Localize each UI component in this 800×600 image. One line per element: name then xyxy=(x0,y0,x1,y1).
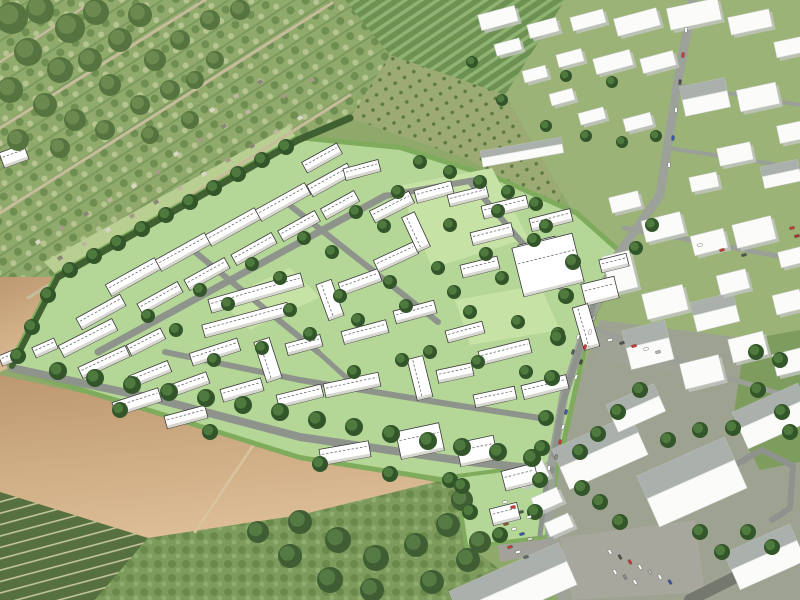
tree-highlight xyxy=(162,82,174,94)
tree-highlight xyxy=(581,131,588,138)
tree xyxy=(491,204,505,218)
tree-highlight xyxy=(346,419,357,430)
tree xyxy=(572,444,588,460)
tree-highlight xyxy=(471,533,485,547)
tree-highlight xyxy=(528,234,537,243)
tree xyxy=(645,218,659,232)
tree xyxy=(55,13,85,43)
tree xyxy=(206,180,222,196)
tree-highlight xyxy=(741,525,751,535)
tree-highlight xyxy=(207,52,218,63)
tree-highlight xyxy=(235,397,246,408)
tree xyxy=(610,404,626,420)
tree-highlight xyxy=(492,205,501,214)
tree xyxy=(519,365,533,379)
tree-highlight xyxy=(474,176,483,185)
tree xyxy=(764,539,780,555)
tree-highlight xyxy=(25,320,35,330)
tree xyxy=(158,207,174,223)
tree xyxy=(297,231,311,245)
tree-highlight xyxy=(617,137,624,144)
tree xyxy=(772,352,788,368)
tree xyxy=(325,527,351,553)
tree xyxy=(612,514,628,530)
tree-highlight xyxy=(170,324,179,333)
tree-highlight xyxy=(101,76,115,90)
tree-highlight xyxy=(528,505,538,515)
tree-highlight xyxy=(400,300,409,309)
tree-highlight xyxy=(182,112,193,123)
tree xyxy=(560,70,572,82)
tree xyxy=(86,369,104,387)
tree-highlight xyxy=(496,272,505,281)
tree xyxy=(632,382,648,398)
car xyxy=(684,27,687,32)
tree-highlight xyxy=(383,426,394,437)
tree-highlight xyxy=(159,208,169,218)
tree xyxy=(303,327,317,341)
tree xyxy=(479,247,493,261)
tree-highlight xyxy=(256,342,265,351)
tree-highlight xyxy=(541,121,548,128)
tree xyxy=(160,80,180,100)
tree xyxy=(182,194,198,210)
tree-highlight xyxy=(384,276,393,285)
tree xyxy=(7,129,29,151)
tree-highlight xyxy=(472,356,481,365)
tree-highlight xyxy=(444,166,453,175)
tree-highlight xyxy=(607,77,614,84)
tree xyxy=(99,74,121,96)
tree xyxy=(10,348,26,364)
tree-highlight xyxy=(222,298,231,307)
tree-highlight xyxy=(630,242,639,251)
tree xyxy=(404,533,428,557)
tree xyxy=(24,319,40,335)
tree-highlight xyxy=(172,32,184,44)
tree xyxy=(169,323,183,337)
tree xyxy=(471,355,485,369)
tree xyxy=(325,245,339,259)
tree-highlight xyxy=(130,5,145,20)
tree-highlight xyxy=(520,366,529,375)
tree xyxy=(501,185,515,199)
tree xyxy=(130,95,150,115)
tree-highlight xyxy=(87,249,97,259)
tree xyxy=(134,221,150,237)
tree-highlight xyxy=(80,50,95,65)
tree-highlight xyxy=(232,2,244,14)
tree xyxy=(463,305,477,319)
tree-highlight xyxy=(497,95,504,102)
tree-highlight xyxy=(9,131,23,145)
tree-highlight xyxy=(124,377,135,388)
tree-highlight xyxy=(611,405,621,415)
tree-highlight xyxy=(775,405,785,415)
car xyxy=(678,79,681,84)
tree-highlight xyxy=(383,467,393,477)
tree-highlight xyxy=(535,441,545,451)
tree xyxy=(382,425,400,443)
tree xyxy=(283,303,297,317)
tree-highlight xyxy=(194,284,203,293)
tree-highlight xyxy=(783,425,793,435)
tree-highlight xyxy=(551,331,561,341)
tree-highlight xyxy=(132,97,144,109)
tree-highlight xyxy=(524,450,535,461)
tree xyxy=(443,218,457,232)
tree xyxy=(170,30,190,50)
tree-highlight xyxy=(352,314,361,323)
car xyxy=(671,135,674,140)
tree xyxy=(692,524,708,540)
tree xyxy=(49,362,67,380)
tree xyxy=(110,235,126,251)
tree xyxy=(197,389,215,407)
tree xyxy=(83,0,109,25)
tree xyxy=(558,288,574,304)
tree-highlight xyxy=(348,366,357,375)
tree xyxy=(650,130,662,142)
tree-highlight xyxy=(661,433,671,443)
tree-highlight xyxy=(438,515,453,530)
tree-highlight xyxy=(113,403,123,413)
tree-highlight xyxy=(463,505,473,515)
tree-highlight xyxy=(304,328,313,337)
tree xyxy=(230,166,246,182)
tree xyxy=(550,330,566,346)
tree xyxy=(534,440,550,456)
car xyxy=(667,162,670,167)
tree-highlight xyxy=(773,353,783,363)
tree xyxy=(207,353,221,367)
tree xyxy=(312,456,328,472)
tree-highlight xyxy=(272,404,283,415)
tree xyxy=(544,370,560,386)
tree-highlight xyxy=(11,349,21,359)
tree-highlight xyxy=(327,529,343,545)
tree-highlight xyxy=(613,515,623,525)
tree xyxy=(420,570,444,594)
tree-highlight xyxy=(422,572,437,587)
tree xyxy=(40,287,56,303)
tree-highlight xyxy=(502,186,511,195)
tree-highlight xyxy=(249,523,263,537)
tree xyxy=(574,480,590,496)
tree xyxy=(273,271,287,285)
tree-highlight xyxy=(97,122,109,134)
tree-highlight xyxy=(559,289,569,299)
tree xyxy=(86,248,102,264)
tree xyxy=(349,205,363,219)
tree xyxy=(247,521,269,543)
tree xyxy=(383,275,397,289)
tree-highlight xyxy=(464,306,473,315)
tree-highlight xyxy=(539,411,549,421)
tree xyxy=(538,410,554,426)
tree-highlight xyxy=(202,12,214,24)
tree xyxy=(436,513,460,537)
tree-highlight xyxy=(208,354,217,363)
tree xyxy=(492,527,508,543)
tree xyxy=(419,432,437,450)
tree xyxy=(278,544,302,568)
tree-highlight xyxy=(406,535,421,550)
tree-highlight xyxy=(414,156,423,165)
tree xyxy=(774,404,790,420)
tree xyxy=(527,233,541,247)
car xyxy=(681,52,684,57)
tree-highlight xyxy=(420,433,431,444)
tree-highlight xyxy=(591,427,601,437)
tree xyxy=(254,152,270,168)
tree-highlight xyxy=(378,220,387,229)
tree xyxy=(128,3,152,27)
tree-highlight xyxy=(749,345,759,355)
tree xyxy=(590,426,606,442)
tree-highlight xyxy=(49,59,65,75)
tree xyxy=(181,111,199,129)
tree xyxy=(431,261,445,275)
tree xyxy=(141,126,159,144)
tree-highlight xyxy=(35,95,50,110)
tree-highlight xyxy=(593,495,603,505)
tree xyxy=(363,545,389,571)
tree xyxy=(186,71,204,89)
tree xyxy=(112,402,128,418)
tree xyxy=(539,219,553,233)
tree xyxy=(511,315,525,329)
tree-highlight xyxy=(142,310,151,319)
tree-highlight xyxy=(693,423,703,433)
tree xyxy=(466,56,478,68)
tree-highlight xyxy=(573,445,583,455)
tree xyxy=(462,504,478,520)
tree-highlight xyxy=(142,127,153,138)
car xyxy=(674,107,677,112)
tree xyxy=(160,383,178,401)
tree xyxy=(447,285,461,299)
tree-highlight xyxy=(545,371,555,381)
tree xyxy=(202,424,218,440)
tree-highlight xyxy=(646,219,655,228)
tree-highlight xyxy=(110,30,125,45)
tree xyxy=(200,10,220,30)
tree xyxy=(50,138,70,158)
tree-highlight xyxy=(365,547,381,563)
tree xyxy=(565,254,581,270)
tree-highlight xyxy=(512,316,521,325)
tree-highlight xyxy=(490,444,501,455)
tree-highlight xyxy=(458,550,473,565)
tree xyxy=(206,51,224,69)
tree xyxy=(351,313,365,327)
tree-highlight xyxy=(530,198,539,207)
tree-highlight xyxy=(561,71,568,78)
tree xyxy=(616,136,628,148)
tree-highlight xyxy=(41,288,51,298)
tree xyxy=(141,309,155,323)
tree-highlight xyxy=(540,220,549,229)
tree xyxy=(245,257,259,271)
tree xyxy=(308,411,326,429)
tree xyxy=(692,422,708,438)
urban-planning-aerial-view xyxy=(0,0,800,600)
scene-canvas xyxy=(0,0,800,600)
tree-highlight xyxy=(66,111,80,125)
tree xyxy=(748,344,764,360)
tree-highlight xyxy=(444,219,453,228)
tree xyxy=(62,262,78,278)
tree xyxy=(660,432,676,448)
tree-highlight xyxy=(183,195,193,205)
tree-highlight xyxy=(313,457,323,467)
tree xyxy=(592,494,608,510)
tree xyxy=(489,443,507,461)
tree-highlight xyxy=(448,286,457,295)
tree-highlight xyxy=(454,439,465,450)
tree xyxy=(453,438,471,456)
tree xyxy=(347,365,361,379)
tree-highlight xyxy=(480,248,489,257)
tree-highlight xyxy=(187,72,198,83)
tree xyxy=(234,396,252,414)
tree-highlight xyxy=(207,181,217,191)
tree-highlight xyxy=(443,473,453,483)
tree-highlight xyxy=(765,540,775,550)
tree-highlight xyxy=(726,421,736,431)
tree xyxy=(454,478,470,494)
tree xyxy=(288,510,312,534)
tree xyxy=(423,345,437,359)
tree-highlight xyxy=(87,370,98,381)
tree-highlight xyxy=(50,363,61,374)
tree-highlight xyxy=(57,15,76,34)
tree-highlight xyxy=(255,153,265,163)
tree-highlight xyxy=(284,304,293,313)
tree xyxy=(144,49,166,71)
tree-highlight xyxy=(633,383,643,393)
tree-highlight xyxy=(290,512,305,527)
tree xyxy=(345,418,363,436)
tree xyxy=(78,48,102,72)
tree-highlight xyxy=(111,236,121,246)
tree-highlight xyxy=(319,569,335,585)
tree-highlight xyxy=(279,140,289,150)
tree xyxy=(413,155,427,169)
tree xyxy=(580,130,592,142)
tree-highlight xyxy=(396,354,405,363)
tree xyxy=(443,165,457,179)
tree-highlight xyxy=(274,272,283,281)
tree xyxy=(473,175,487,189)
tree-highlight xyxy=(231,167,241,177)
tree xyxy=(606,76,618,88)
tree xyxy=(221,297,235,311)
tree xyxy=(377,219,391,233)
tree xyxy=(395,353,409,367)
tree xyxy=(271,403,289,421)
tree-highlight xyxy=(52,140,64,152)
tree xyxy=(230,0,250,20)
tree-highlight xyxy=(392,186,401,195)
tree xyxy=(750,382,766,398)
tree-highlight xyxy=(16,40,33,57)
tree-highlight xyxy=(362,580,377,595)
tree-highlight xyxy=(63,263,73,273)
tree xyxy=(399,299,413,313)
tree-highlight xyxy=(280,546,295,561)
tree-highlight xyxy=(651,131,658,138)
tree xyxy=(532,472,548,488)
tree-highlight xyxy=(575,481,585,491)
tree xyxy=(629,241,643,255)
tree xyxy=(495,271,509,285)
tree-highlight xyxy=(85,1,101,17)
tree xyxy=(540,120,552,132)
tree xyxy=(782,424,798,440)
tree xyxy=(382,466,398,482)
tree-highlight xyxy=(334,290,343,299)
tree xyxy=(496,94,508,106)
tree xyxy=(278,139,294,155)
tree xyxy=(255,341,269,355)
tree xyxy=(740,524,756,540)
tree xyxy=(108,28,132,52)
tree-highlight xyxy=(350,206,359,215)
tree-highlight xyxy=(432,262,441,271)
tree xyxy=(95,120,115,140)
tree xyxy=(193,283,207,297)
tree-highlight xyxy=(161,384,172,395)
tree xyxy=(469,531,491,553)
tree xyxy=(391,185,405,199)
tree-highlight xyxy=(533,473,543,483)
tree-highlight xyxy=(751,383,761,393)
tree xyxy=(333,289,347,303)
tree-highlight xyxy=(693,525,703,535)
tree-highlight xyxy=(326,246,335,255)
tree-highlight xyxy=(493,528,503,538)
tree-highlight xyxy=(309,412,320,423)
tree-highlight xyxy=(455,479,465,489)
tree xyxy=(47,57,73,83)
tree xyxy=(33,93,57,117)
tree-highlight xyxy=(198,390,209,401)
tree-highlight xyxy=(298,232,307,241)
tree-highlight xyxy=(467,57,474,64)
tree-highlight xyxy=(146,51,160,65)
tree-highlight xyxy=(715,545,725,555)
tree xyxy=(14,38,42,66)
tree xyxy=(317,567,343,593)
tree xyxy=(123,376,141,394)
tree xyxy=(529,197,543,211)
tree xyxy=(725,420,741,436)
tree xyxy=(714,544,730,560)
tree-highlight xyxy=(246,258,255,267)
tree-highlight xyxy=(135,222,145,232)
tree-highlight xyxy=(203,425,213,435)
tree xyxy=(64,109,86,131)
tree-highlight xyxy=(566,255,576,265)
tree-highlight xyxy=(424,346,433,355)
